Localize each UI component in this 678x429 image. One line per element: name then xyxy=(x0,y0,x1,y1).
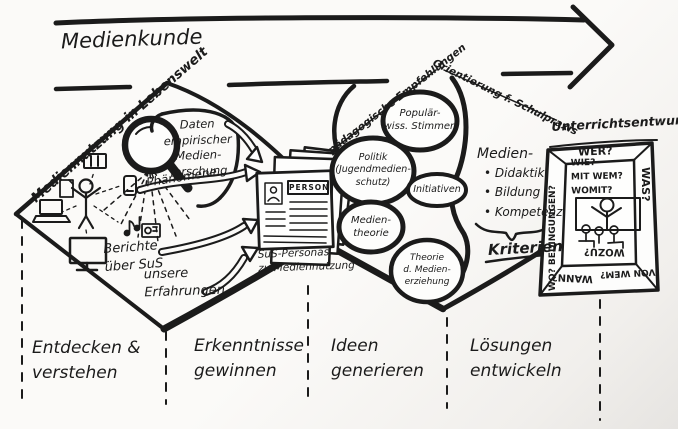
monitor-icon xyxy=(70,238,106,270)
label-erfahrungen: unsere Erfahrungen xyxy=(143,264,225,302)
bubble-theorie-label: Theorie d. Medien- erziehung xyxy=(390,252,464,288)
bubble-popwiss-label: Populär- wiss. Stimmen xyxy=(383,107,457,133)
bubble-initiativen-label: Initiativen xyxy=(408,184,466,196)
bubble-politik-label: Politik (Jugendmedien- schutz) xyxy=(331,152,415,189)
frame-inner-bottom-label: WOZU? xyxy=(584,245,625,259)
phase-label-ideen: Ideen generieren xyxy=(331,334,424,383)
student-figure xyxy=(72,180,100,229)
sketchnote-canvas: Medienkunde Mediennutzung in Lebenswelt … xyxy=(0,0,678,429)
bubble-medientheorie-label: Medien- theorie xyxy=(339,214,403,240)
frame-bottom-left-label: WANN? xyxy=(552,270,593,285)
medien-heading: Medien- xyxy=(477,145,533,163)
frame-right-label: WAS? xyxy=(638,167,652,201)
phase-label-erkenntnisse: Erkenntnisse gewinnen xyxy=(194,334,304,383)
phase-label-loesungen: Lösungen entwickeln xyxy=(470,334,562,383)
medien-list-item: Didaktik xyxy=(484,164,562,183)
phase-label-entdecken: Entdecken & verstehen xyxy=(32,336,141,385)
persona-card-header: PERSON xyxy=(289,183,327,193)
process-arrow-label: Medienkunde xyxy=(61,24,203,56)
frame-inner-questions: WIE? MIT WEM? WOMIT? xyxy=(571,157,624,200)
personas-caption: SuS-Personas zu Mediennutzung xyxy=(258,245,356,276)
